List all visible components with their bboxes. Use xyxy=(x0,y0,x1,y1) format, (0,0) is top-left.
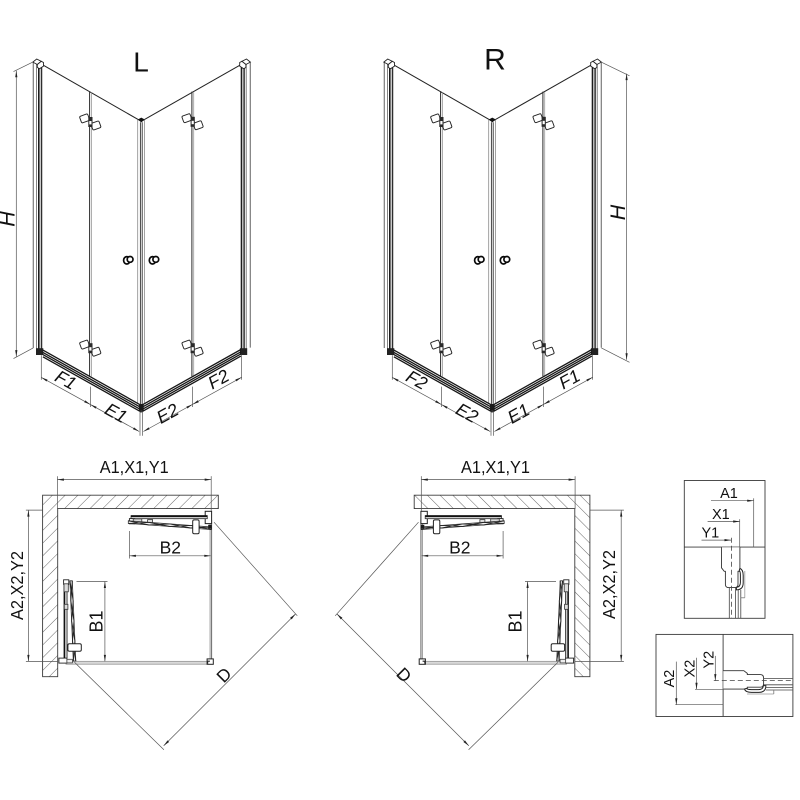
svg-text:Y1: Y1 xyxy=(702,526,720,542)
svg-text:X1: X1 xyxy=(712,507,730,523)
svg-text:H: H xyxy=(606,204,630,220)
svg-text:A1,X1,Y1: A1,X1,Y1 xyxy=(100,457,169,477)
svg-text:A2,X2,Y2: A2,X2,Y2 xyxy=(599,550,619,619)
svg-text:B1: B1 xyxy=(87,610,107,632)
svg-text:A2,X2,Y2: A2,X2,Y2 xyxy=(7,551,27,620)
svg-text:B2: B2 xyxy=(160,538,181,558)
svg-text:L: L xyxy=(133,47,149,78)
svg-text:A2: A2 xyxy=(662,670,678,688)
svg-text:B1: B1 xyxy=(506,610,526,632)
svg-text:X2: X2 xyxy=(683,660,699,678)
svg-text:R: R xyxy=(484,44,506,77)
svg-text:H: H xyxy=(0,211,20,227)
svg-text:A1,X1,Y1: A1,X1,Y1 xyxy=(461,457,530,477)
svg-text:B2: B2 xyxy=(449,538,470,558)
svg-text:A1: A1 xyxy=(720,486,738,502)
svg-text:Y2: Y2 xyxy=(701,651,717,669)
